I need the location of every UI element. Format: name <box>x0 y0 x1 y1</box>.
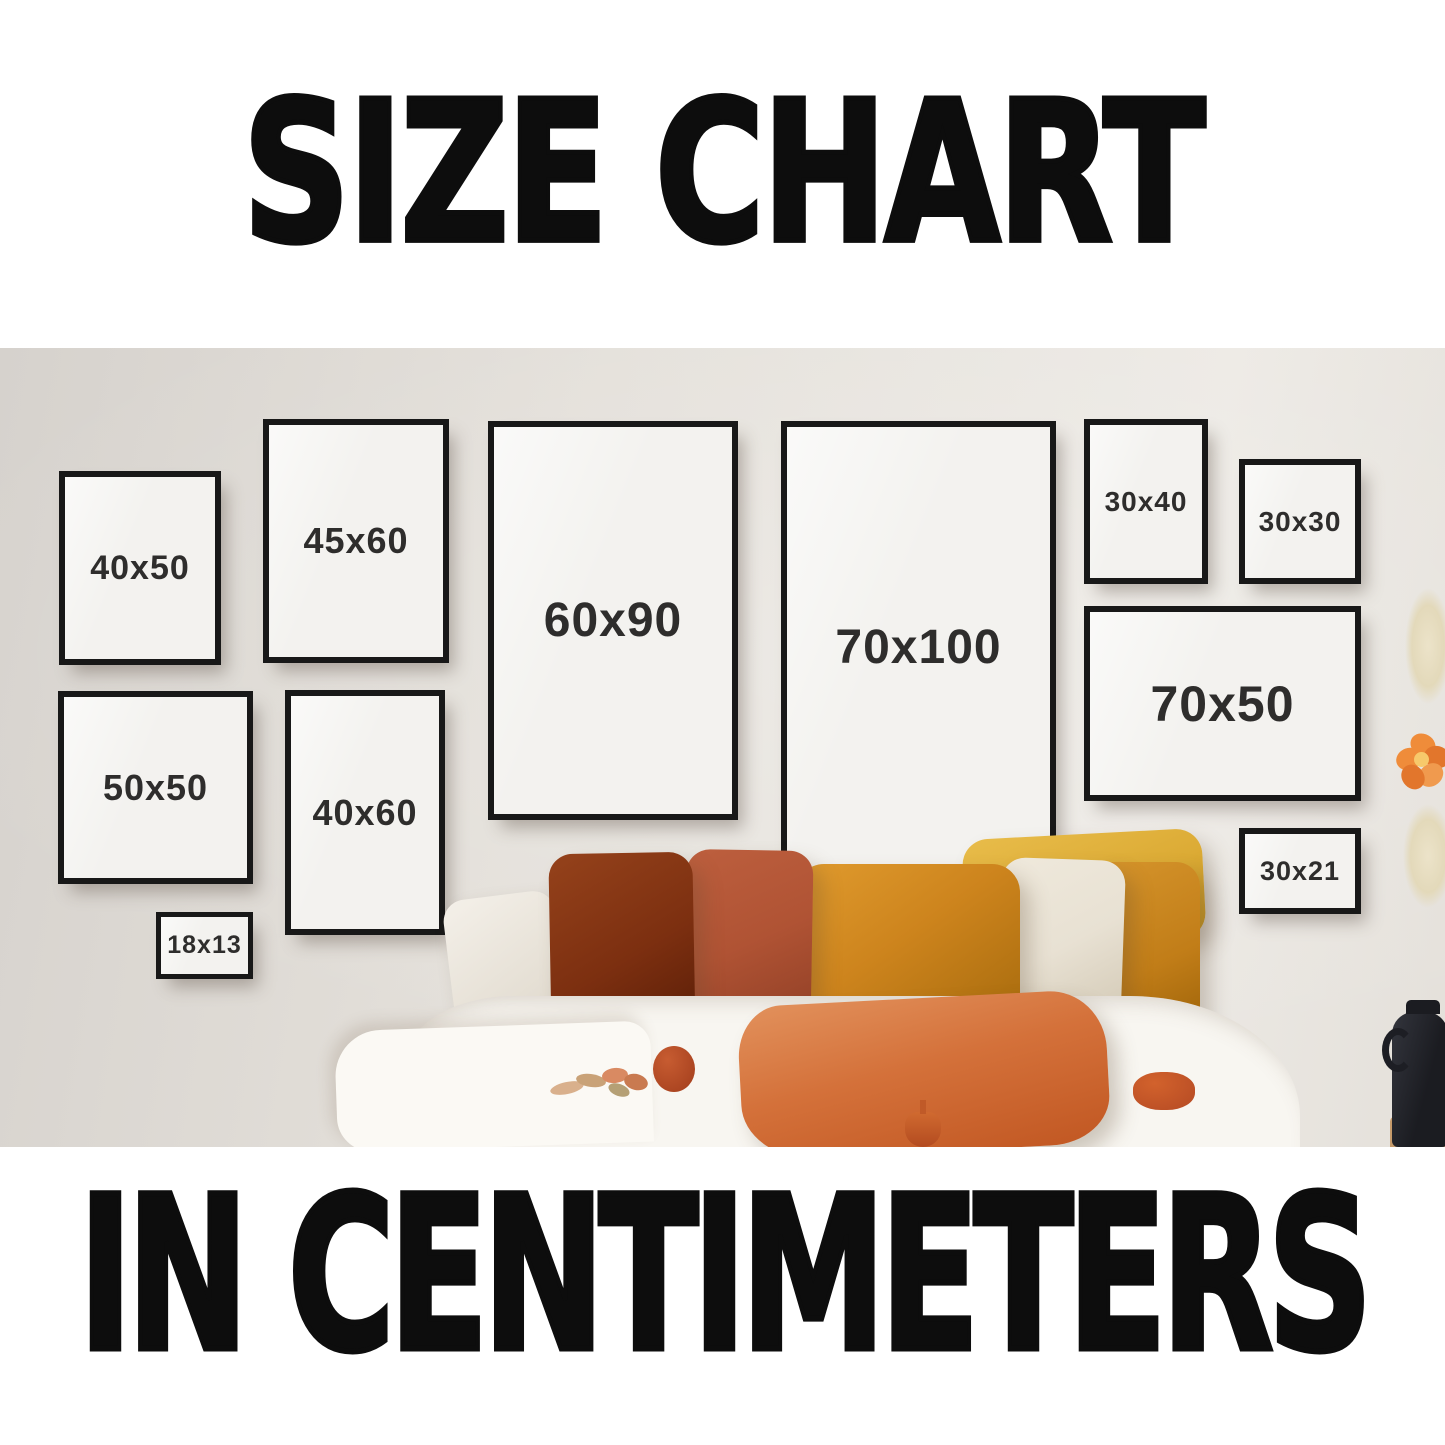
frame-size-label: 18x13 <box>167 931 242 960</box>
dried-foliage <box>1405 588 1445 704</box>
dried-flower-sprig <box>550 1060 666 1108</box>
frame-45x60: 45x60 <box>263 419 449 663</box>
size-chart-graphic: SIZE CHART 40x50 45x60 60x90 70x100 <box>0 0 1445 1445</box>
header: SIZE CHART <box>0 0 1445 348</box>
frame-size-label: 70x50 <box>1150 675 1294 733</box>
black-vase <box>1392 1012 1445 1147</box>
frame-18x13: 18x13 <box>156 912 253 979</box>
footer-title: IN CENTIMETERS <box>78 1169 1366 1382</box>
frame-size-label: 50x50 <box>103 767 208 809</box>
footer: IN CENTIMETERS <box>0 1147 1445 1445</box>
tassel-pompom <box>905 1112 941 1147</box>
bedroom-wall-photo: 40x50 45x60 60x90 70x100 30x40 30x30 70x… <box>0 348 1445 1147</box>
tassel-pompom <box>1133 1072 1195 1110</box>
frame-30x30: 30x30 <box>1239 459 1361 584</box>
orange-flower <box>1394 732 1445 796</box>
dried-foliage <box>1403 804 1445 908</box>
frame-size-label: 40x60 <box>312 792 417 834</box>
frame-40x60: 40x60 <box>285 690 445 935</box>
frame-size-label: 70x100 <box>835 620 1001 675</box>
frame-70x50: 70x50 <box>1084 606 1361 801</box>
frame-30x40: 30x40 <box>1084 419 1208 584</box>
page-title: SIZE CHART <box>242 77 1202 272</box>
frame-size-label: 40x50 <box>90 549 190 588</box>
frame-50x50: 50x50 <box>58 691 253 884</box>
frame-60x90: 60x90 <box>488 421 738 820</box>
frame-size-label: 30x21 <box>1260 856 1340 887</box>
frame-size-label: 45x60 <box>303 520 408 562</box>
frame-70x100: 70x100 <box>781 421 1056 873</box>
frame-40x50: 40x50 <box>59 471 221 665</box>
frame-30x21: 30x21 <box>1239 828 1361 914</box>
flower-center <box>1414 752 1429 767</box>
frame-size-label: 30x40 <box>1105 486 1188 518</box>
frame-size-label: 60x90 <box>544 593 682 648</box>
frame-size-label: 30x30 <box>1259 506 1342 538</box>
